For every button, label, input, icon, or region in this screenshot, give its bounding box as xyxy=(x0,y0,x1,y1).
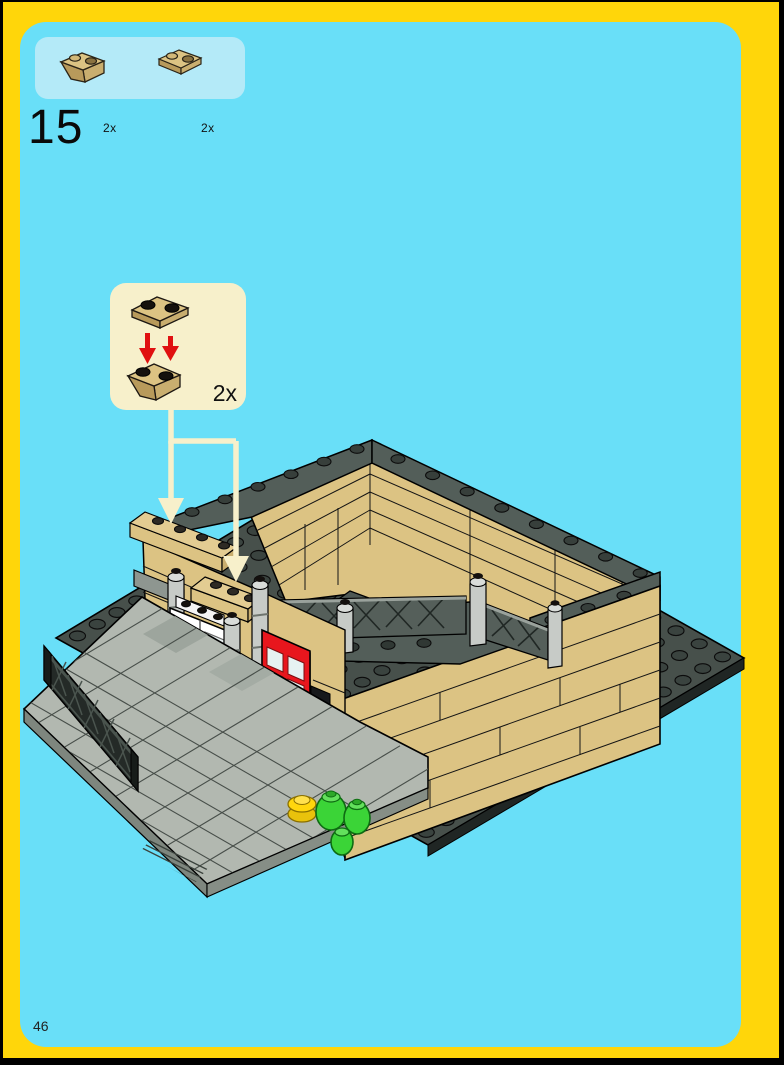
part-quantity: 2x xyxy=(103,121,117,135)
page-number: 46 xyxy=(33,1018,49,1034)
plant-bush xyxy=(331,828,353,855)
part-quantity: 2x xyxy=(201,121,215,135)
plate-1x2-icon xyxy=(132,297,188,328)
instruction-page: { "page": { "step_number": "15", "page_n… xyxy=(0,0,784,1065)
parts-callout-box: 2x 2x xyxy=(35,37,245,99)
inverted-slope-brick-icon xyxy=(55,45,119,85)
yellow-round-piece xyxy=(288,796,316,823)
insert-arrow-icon xyxy=(139,333,179,364)
lego-model-illustration xyxy=(0,0,784,1065)
step-number: 15 xyxy=(28,100,83,155)
callout-quantity: 2x xyxy=(213,380,237,407)
assembly-callout-box: 2x xyxy=(110,283,246,410)
inverted-slope-brick-icon xyxy=(128,364,180,400)
plate-1x2-icon xyxy=(153,45,209,77)
